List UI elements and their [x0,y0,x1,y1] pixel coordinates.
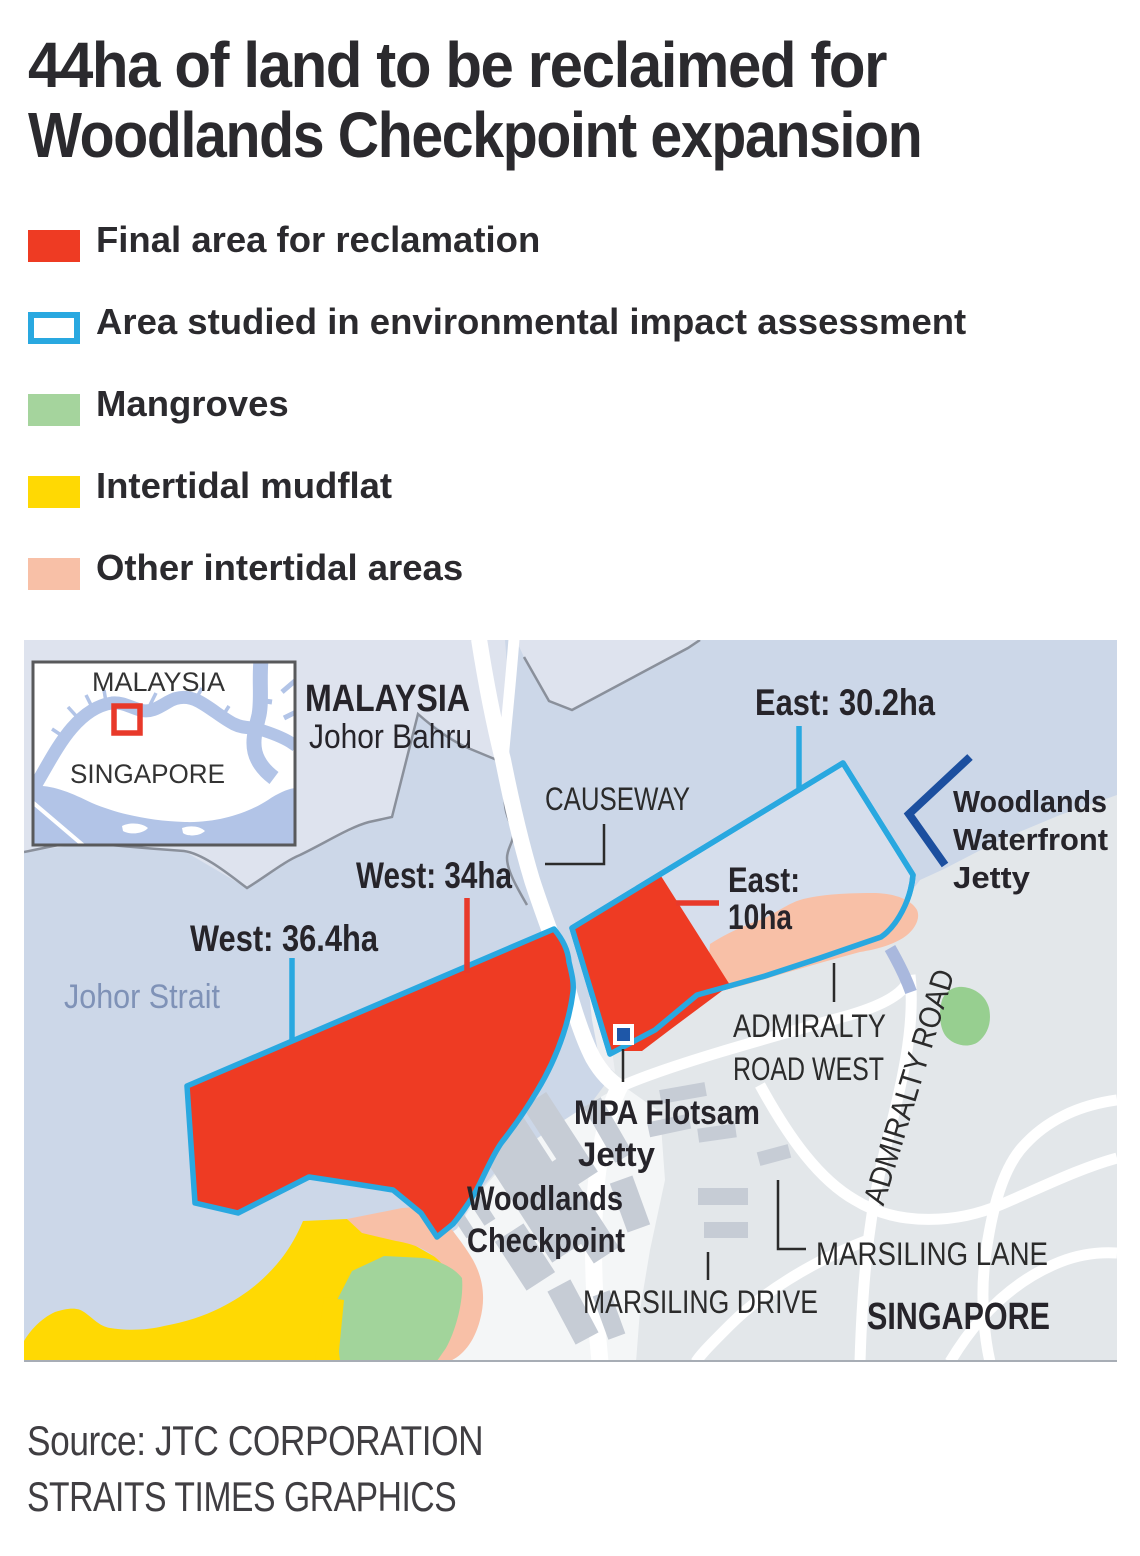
svg-text:ROAD WEST: ROAD WEST [733,1051,884,1087]
svg-text:Jetty: Jetty [953,860,1031,895]
svg-text:Checkpoint: Checkpoint [467,1222,625,1260]
svg-text:ADMIRALTY: ADMIRALTY [733,1008,886,1044]
svg-text:MALAYSIA: MALAYSIA [92,667,225,697]
svg-text:Woodlands: Woodlands [953,784,1107,819]
svg-text:CAUSEWAY: CAUSEWAY [545,781,690,817]
svg-text:SINGAPORE: SINGAPORE [867,1296,1050,1338]
svg-text:East:: East: [728,861,800,900]
svg-text:Johor Bahru: Johor Bahru [309,718,472,756]
svg-text:East: 30.2ha: East: 30.2ha [755,682,935,723]
svg-text:SINGAPORE: SINGAPORE [70,759,225,789]
svg-text:West: 36.4ha: West: 36.4ha [190,918,378,959]
svg-text:10ha: 10ha [728,898,792,937]
svg-text:MPA Flotsam: MPA Flotsam [574,1094,760,1132]
svg-text:Waterfront: Waterfront [953,822,1108,857]
svg-text:Jetty: Jetty [578,1136,655,1174]
svg-text:MALAYSIA: MALAYSIA [305,678,470,720]
svg-text:Woodlands: Woodlands [467,1180,623,1218]
svg-text:West: 34ha: West: 34ha [356,855,512,896]
svg-text:Johor Strait: Johor Strait [64,978,220,1016]
svg-text:MARSILING DRIVE: MARSILING DRIVE [583,1284,818,1320]
svg-text:MARSILING LANE: MARSILING LANE [816,1236,1048,1272]
